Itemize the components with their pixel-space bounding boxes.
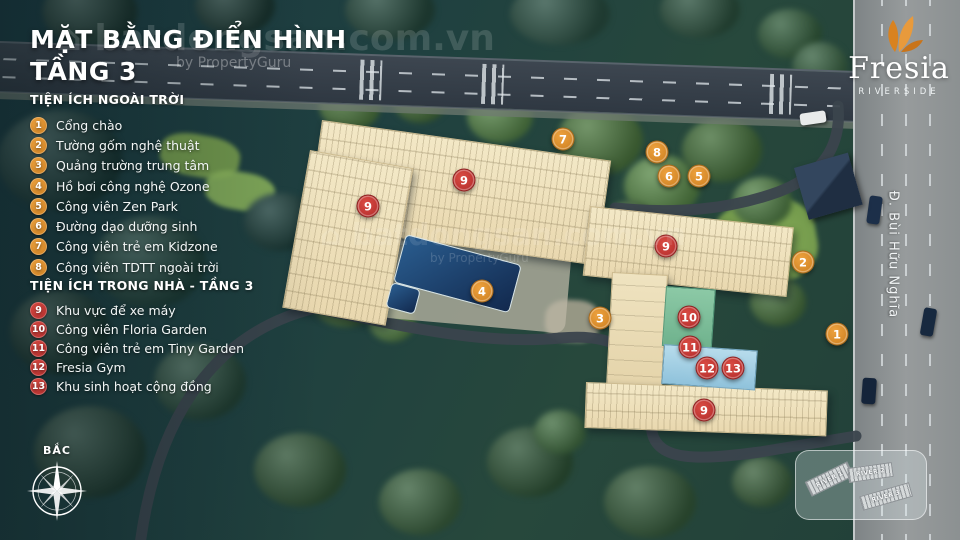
legend-indoor-heading: TIỆN ÍCH TRONG NHÀ - TẦNG 3 — [30, 278, 254, 293]
title-line-2: TẦNG 3 — [30, 57, 137, 86]
map-marker-number: 2 — [799, 255, 807, 269]
map-marker: 8 — [646, 141, 669, 164]
legend-item: 11 Công viên trẻ em Tiny Garden — [30, 339, 254, 358]
legend-item-label: Công viên trẻ em Tiny Garden — [56, 341, 244, 356]
map-marker-number: 11 — [682, 340, 698, 354]
legend-item-label: Công viên Floria Garden — [56, 322, 207, 337]
keyplan-block-label: RIVER 2 — [856, 467, 886, 478]
map-marker-number: 8 — [653, 145, 661, 159]
legend-item-label: Đường dạo dưỡng sinh — [56, 219, 197, 234]
map-marker: 10 — [678, 306, 701, 329]
map-marker-number: 9 — [662, 239, 670, 253]
map-marker: 9 — [693, 399, 716, 422]
legend-outdoor-heading: TIỆN ÍCH NGOÀI TRỜI — [30, 92, 219, 107]
legend-item-label: Khu vực để xe máy — [56, 303, 176, 318]
legend-item: 3 Quảng trường trung tâm — [30, 156, 219, 176]
legend-item-label: Hồ bơi công nghệ Ozone — [56, 179, 210, 194]
map-marker-number: 1 — [833, 327, 841, 341]
legend-item-number: 3 — [30, 157, 47, 174]
legend-indoor-amenities: TIỆN ÍCH TRONG NHÀ - TẦNG 3 9 Khu vực để… — [30, 278, 254, 396]
map-marker: 11 — [679, 336, 702, 359]
map-marker: 3 — [589, 307, 612, 330]
legend-item: 6 Đường dạo dưỡng sinh — [30, 216, 219, 236]
map-marker: 9 — [453, 169, 476, 192]
map-marker-number: 9 — [460, 173, 468, 187]
page-title: MẶT BẰNG ĐIỂN HÌNH TẦNG 3 — [30, 24, 347, 88]
map-marker-number: 3 — [596, 311, 604, 325]
street-label: Đ. Bùi Hữu Nghĩa — [886, 175, 901, 335]
legend-item-number: 1 — [30, 117, 47, 134]
legend-item: 10 Công viên Floria Garden — [30, 320, 254, 339]
legend-item: 5 Công viên Zen Park — [30, 196, 219, 216]
map-marker-number: 4 — [478, 284, 486, 298]
compass: BẮC — [22, 444, 92, 527]
project-logo: Fresia RIVERSIDE — [843, 12, 955, 97]
map-marker-number: 9 — [364, 199, 372, 213]
map-marker: 9 — [655, 235, 678, 258]
legend-item-label: Công viên Zen Park — [56, 199, 178, 214]
legend-item-number: 11 — [30, 340, 47, 357]
map-marker: 7 — [552, 128, 575, 151]
legend-item-number: 9 — [30, 302, 47, 319]
keyplan-block-label: RIVER 3 — [871, 489, 901, 504]
map-marker: 5 — [688, 165, 711, 188]
legend-item-label: Công viên TDTT ngoài trời — [56, 260, 219, 275]
fresia-flower-icon — [873, 12, 925, 54]
map-marker-number: 9 — [700, 403, 708, 417]
map-marker: 12 — [696, 357, 719, 380]
legend-item-number: 4 — [30, 178, 47, 195]
map-marker-number: 10 — [681, 310, 697, 324]
map-marker-number: 6 — [665, 169, 673, 183]
title-line-1: MẶT BẰNG ĐIỂN HÌNH — [30, 25, 347, 54]
keyplan-block-river-2: RIVER 2 — [847, 462, 894, 483]
legend-item-label: Công viên trẻ em Kidzone — [56, 239, 218, 254]
legend-item-number: 2 — [30, 137, 47, 154]
legend-item: 9 Khu vực để xe máy — [30, 301, 254, 320]
keyplan-block-river-3: RIVER 3 — [859, 482, 913, 511]
building-core — [606, 272, 668, 393]
legend-item-label: Quảng trường trung tâm — [56, 158, 209, 173]
map-marker: 2 — [792, 251, 815, 274]
map-marker-number: 5 — [695, 169, 703, 183]
legend-item-number: 10 — [30, 321, 47, 338]
logo-subtitle: RIVERSIDE — [843, 87, 955, 97]
legend-item: 2 Tường gốm nghệ thuật — [30, 135, 219, 155]
site-plan-poster: 78652134999910111213 MẶT BẰNG ĐIỂN HÌNH … — [0, 0, 960, 540]
keyplan-inset: RIVER 1 RIVER 2 RIVER 3 — [795, 450, 927, 520]
legend-item-number: 12 — [30, 359, 47, 376]
legend-item: 4 Hồ bơi công nghệ Ozone — [30, 176, 219, 196]
map-marker: 6 — [658, 165, 681, 188]
legend-item: 8 Công viên TDTT ngoài trời — [30, 257, 219, 277]
legend-item-label: Cổng chào — [56, 118, 122, 133]
legend-item: 1 Cổng chào — [30, 115, 219, 135]
legend-item: 7 Công viên trẻ em Kidzone — [30, 237, 219, 257]
legend-item: 12 Fresia Gym — [30, 358, 254, 377]
legend-item-label: Tường gốm nghệ thuật — [56, 138, 200, 153]
legend-item-label: Khu sinh hoạt cộng đồng — [56, 379, 212, 394]
logo-name: Fresia — [843, 54, 955, 84]
legend-item-number: 5 — [30, 198, 47, 215]
compass-north-label: BẮC — [22, 444, 92, 457]
legend-item-number: 13 — [30, 378, 47, 395]
map-marker: 1 — [826, 323, 849, 346]
map-marker-number: 13 — [725, 361, 741, 375]
keyplan-block-river-1: RIVER 1 — [805, 462, 854, 497]
legend-item: 13 Khu sinh hoạt cộng đồng — [30, 377, 254, 396]
legend-item-number: 7 — [30, 238, 47, 255]
map-marker: 9 — [357, 195, 380, 218]
legend-item-number: 8 — [30, 259, 47, 276]
legend-item-label: Fresia Gym — [56, 360, 126, 375]
map-marker-number: 12 — [699, 361, 715, 375]
map-marker: 13 — [722, 357, 745, 380]
map-marker-number: 7 — [559, 132, 567, 146]
map-marker: 4 — [471, 280, 494, 303]
keyplan-block-label: RIVER 1 — [815, 469, 844, 488]
legend-outdoor-amenities: TIỆN ÍCH NGOÀI TRỜI 1 Cổng chào 2 Tường … — [30, 92, 219, 277]
legend-item-number: 6 — [30, 218, 47, 235]
compass-rose-icon — [22, 457, 92, 523]
